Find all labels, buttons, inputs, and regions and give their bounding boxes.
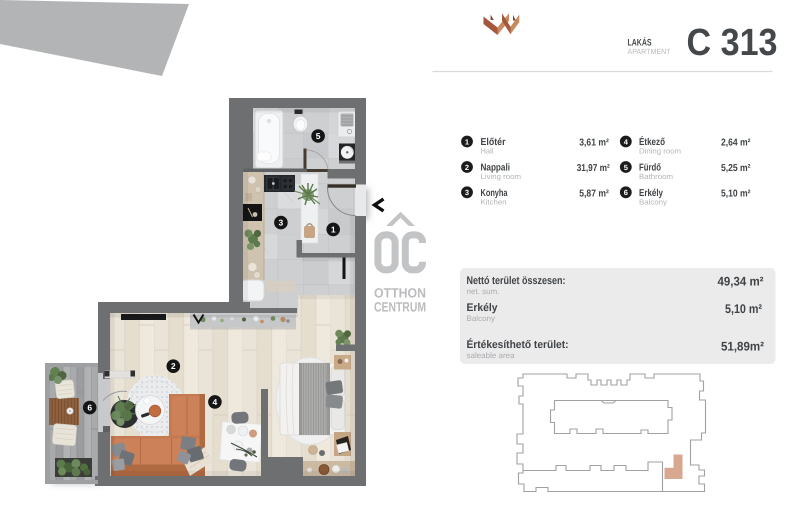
svg-text:5,10 m²: 5,10 m²: [721, 188, 751, 199]
svg-text:Balcony: Balcony: [639, 197, 667, 206]
svg-text:Erkély: Erkély: [467, 302, 499, 314]
svg-text:net. sum.: net. sum.: [467, 287, 500, 296]
svg-text:Nettó terület összesen:: Nettó terület összesen:: [467, 275, 566, 287]
svg-text:31,97 m²: 31,97 m²: [577, 163, 611, 174]
svg-text:2: 2: [171, 361, 176, 371]
svg-text:3: 3: [465, 188, 469, 197]
svg-text:2,64 m²: 2,64 m²: [721, 138, 751, 149]
svg-text:Értékesíthető terület:: Értékesíthető terület:: [467, 338, 569, 351]
svg-text:3,61 m²: 3,61 m²: [579, 138, 609, 149]
svg-text:1: 1: [465, 137, 469, 146]
svg-text:Bathroom: Bathroom: [639, 172, 673, 181]
svg-text:1: 1: [331, 224, 336, 234]
svg-text:4: 4: [213, 397, 218, 407]
svg-text:5,25 m²: 5,25 m²: [721, 163, 751, 174]
svg-text:5: 5: [316, 131, 321, 141]
svg-text:5,10 m²: 5,10 m²: [725, 302, 762, 316]
svg-text:6: 6: [87, 403, 92, 413]
svg-text:CENTRUM: CENTRUM: [374, 300, 426, 315]
svg-text:Dining room: Dining room: [639, 147, 681, 156]
svg-text:APARTMENT: APARTMENT: [628, 47, 671, 56]
svg-text:Living room: Living room: [481, 172, 522, 181]
svg-text:Balcony: Balcony: [467, 314, 495, 323]
svg-text:C 313: C 313: [687, 22, 778, 64]
svg-text:Kitchen: Kitchen: [481, 197, 507, 206]
svg-text:2: 2: [465, 163, 469, 172]
svg-text:49,34 m²: 49,34 m²: [718, 275, 764, 289]
svg-text:5: 5: [624, 163, 628, 172]
svg-text:Hall: Hall: [481, 147, 494, 156]
svg-text:5,87 m²: 5,87 m²: [579, 188, 609, 199]
svg-text:saleable area: saleable area: [467, 351, 516, 360]
svg-text:OTTHON: OTTHON: [374, 286, 426, 301]
svg-text:51,89m²: 51,89m²: [721, 340, 764, 354]
svg-text:3: 3: [279, 218, 284, 228]
svg-text:6: 6: [624, 188, 628, 197]
